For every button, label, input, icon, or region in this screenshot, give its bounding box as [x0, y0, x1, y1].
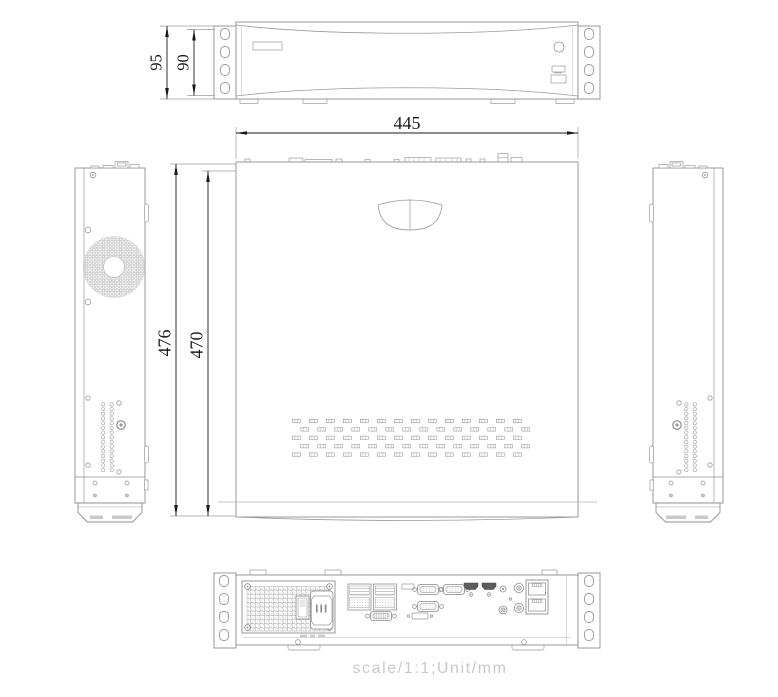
power-inlet — [311, 591, 334, 629]
dim-front-height-body: 90 — [174, 30, 216, 96]
fan-grille — [83, 236, 145, 298]
power-switch — [296, 596, 309, 619]
front-left-rack-ear — [214, 26, 236, 99]
rear-usb-port — [402, 584, 414, 589]
top-view — [218, 154, 597, 521]
right-side-view — [649, 162, 723, 523]
rear-psu-module — [242, 581, 335, 637]
dim-label-470: 470 — [187, 332, 207, 359]
rear-left-rack-ear — [214, 573, 236, 648]
rear-view — [214, 570, 600, 650]
dim-depth-body: 470 — [187, 171, 237, 516]
dim-label-476: 476 — [155, 330, 175, 357]
dim-label-90: 90 — [174, 54, 193, 71]
top-front-bezel-curve — [236, 517, 578, 521]
front-display-window — [253, 42, 282, 50]
front-view — [214, 22, 600, 104]
rear-ethernet-ports — [526, 580, 548, 614]
top-vent-slots — [292, 419, 530, 461]
scale-unit-note: scale/1:1;Unit/mm — [352, 660, 507, 677]
dim-label-445: 445 — [394, 113, 421, 133]
top-cover — [236, 162, 578, 517]
dim-label-95: 95 — [147, 54, 166, 71]
dim-top-width: 445 — [236, 113, 578, 159]
technical-drawing-canvas: 95 90 — [0, 0, 778, 697]
rear-right-rack-ear — [578, 573, 600, 648]
front-feet — [240, 99, 574, 104]
top-rear-connector-profiles — [245, 154, 522, 163]
front-right-rack-ear — [578, 26, 600, 99]
technical-drawing-page: 95 90 — [0, 0, 778, 697]
left-side-view — [75, 162, 149, 523]
